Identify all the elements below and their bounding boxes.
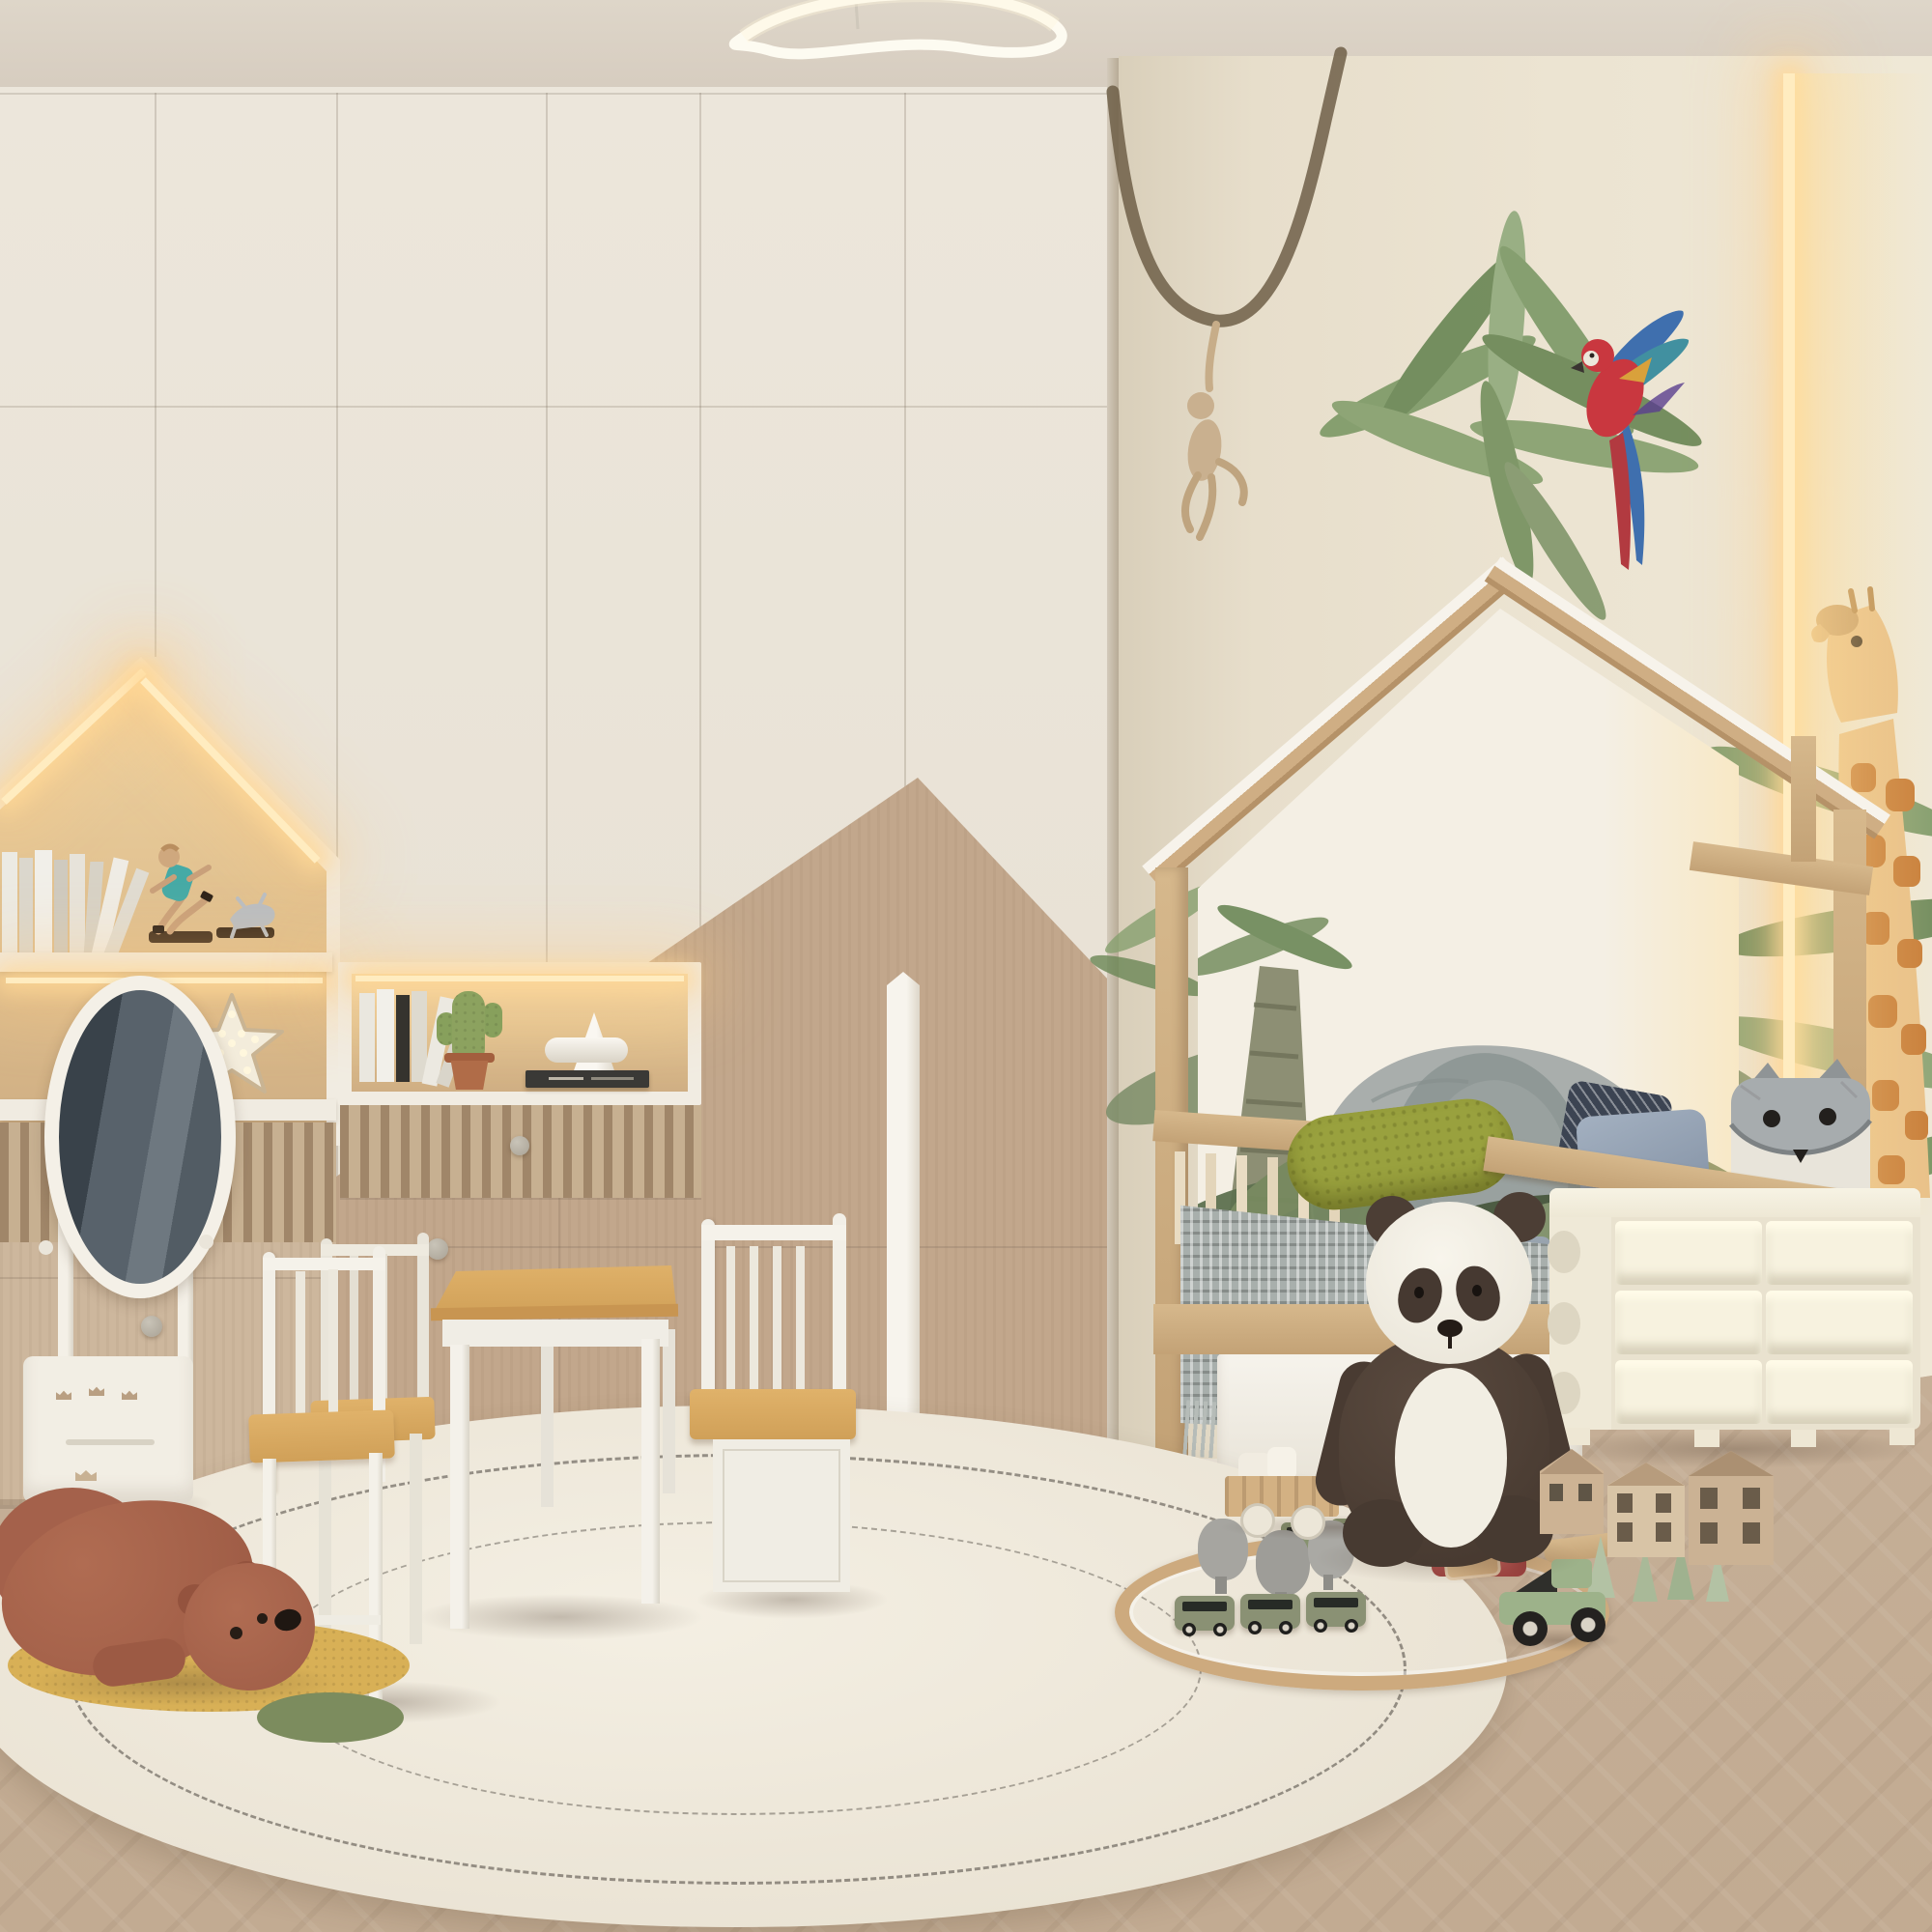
pendant-light xyxy=(676,0,1121,106)
kids-bedroom-render xyxy=(0,0,1932,1932)
gable-stub xyxy=(1791,736,1816,862)
mirror-base xyxy=(23,1356,193,1503)
mirror-oval xyxy=(44,976,236,1298)
led-cove xyxy=(1783,73,1795,1213)
storage-unit xyxy=(1549,1186,1922,1463)
